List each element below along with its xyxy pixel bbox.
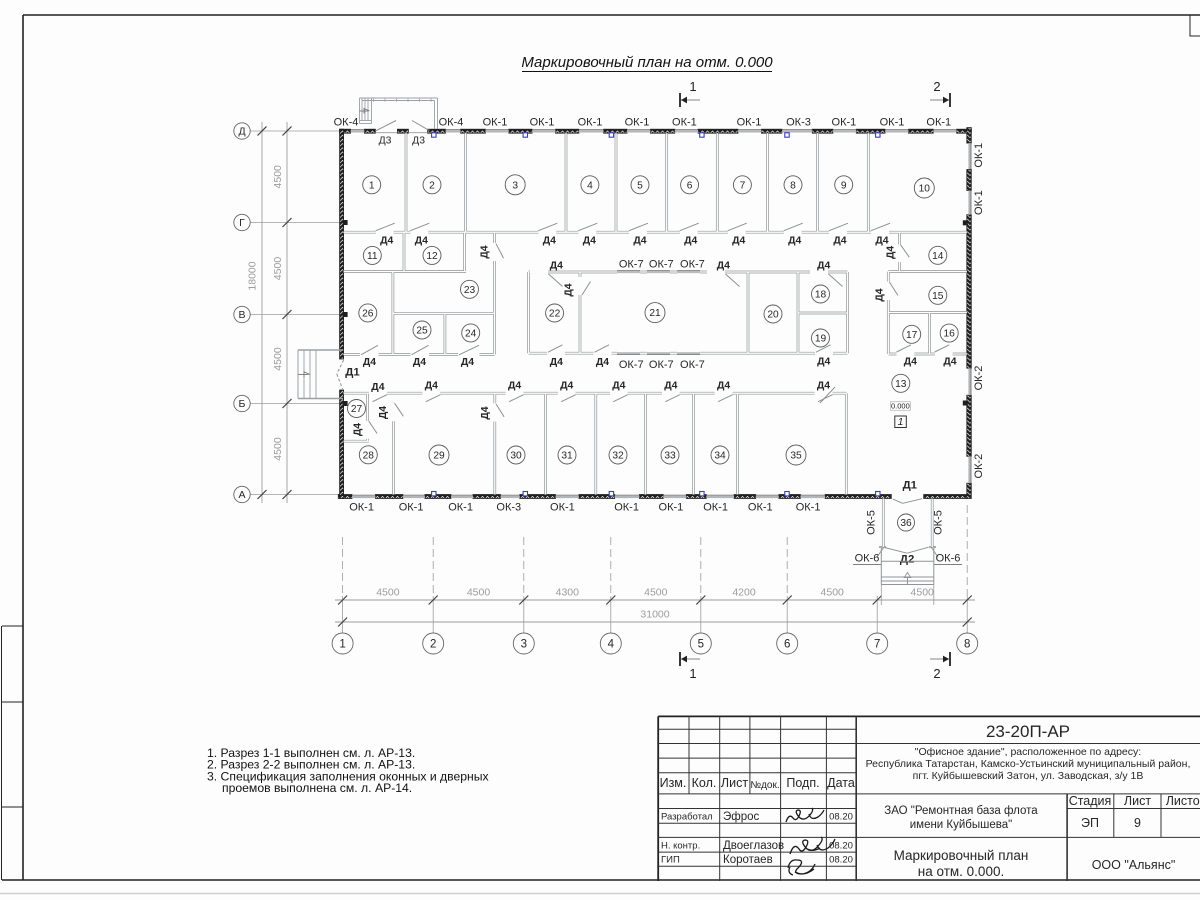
svg-text:Эфрос: Эфрос — [723, 811, 760, 823]
svg-text:21: 21 — [649, 308, 661, 319]
svg-text:4300: 4300 — [556, 587, 580, 599]
svg-text:22: 22 — [549, 309, 561, 320]
svg-text:Д4: Д4 — [596, 357, 609, 368]
svg-text:Д4: Д4 — [363, 357, 376, 368]
svg-text:18: 18 — [815, 290, 827, 301]
svg-text:Д1: Д1 — [903, 480, 918, 492]
svg-text:Д4: Д4 — [717, 381, 730, 392]
svg-text:№док.: №док. — [750, 780, 779, 791]
svg-text:2: 2 — [429, 180, 435, 191]
svg-text:Д4: Д4 — [583, 236, 596, 247]
svg-text:Д4: Д4 — [886, 246, 897, 259]
svg-text:ОК-1: ОК-1 — [973, 143, 985, 168]
svg-text:4200: 4200 — [732, 587, 756, 599]
svg-text:24: 24 — [465, 329, 477, 340]
svg-text:1: 1 — [339, 639, 345, 651]
svg-text:пгт. Куйбышевский Затон, ул. З: пгт. Куйбышевский Затон, ул. Заводская, … — [913, 770, 1144, 782]
svg-text:4: 4 — [587, 180, 593, 191]
svg-text:Республика Татарстан, Камско-У: Республика Татарстан, Камско-Устьинский … — [866, 758, 1191, 770]
svg-text:15: 15 — [932, 291, 944, 302]
svg-text:4: 4 — [608, 639, 615, 651]
svg-text:4500: 4500 — [272, 165, 284, 189]
svg-text:31000: 31000 — [640, 609, 669, 621]
svg-text:Стадия: Стадия — [1069, 794, 1112, 808]
svg-text:Д4: Д4 — [461, 357, 474, 368]
svg-text:36: 36 — [900, 518, 912, 529]
svg-text:Коротаев: Коротаев — [723, 854, 773, 866]
svg-text:Д4: Д4 — [413, 357, 426, 368]
svg-text:Лист: Лист — [721, 776, 748, 790]
svg-text:Изм.: Изм. — [660, 776, 687, 790]
svg-text:ОК-5: ОК-5 — [866, 510, 878, 535]
svg-text:13: 13 — [895, 379, 907, 390]
svg-text:8: 8 — [790, 180, 796, 191]
svg-text:12: 12 — [426, 251, 438, 262]
svg-text:32: 32 — [612, 451, 624, 462]
svg-text:28: 28 — [363, 450, 375, 461]
svg-text:1: 1 — [689, 666, 696, 681]
svg-text:Дата: Дата — [827, 776, 855, 790]
svg-text:2: 2 — [933, 666, 940, 681]
svg-text:4500: 4500 — [467, 587, 491, 599]
svg-text:ОК-1: ОК-1 — [625, 117, 650, 129]
svg-text:ОК-1: ОК-1 — [614, 501, 639, 513]
svg-text:2: 2 — [430, 639, 436, 651]
svg-text:Д3: Д3 — [379, 136, 392, 147]
svg-text:34: 34 — [714, 451, 726, 462]
svg-text:Д4: Д4 — [353, 423, 364, 436]
svg-text:4500: 4500 — [272, 437, 284, 461]
svg-text:ОК-1: ОК-1 — [832, 117, 857, 129]
svg-text:ОК-1: ОК-1 — [550, 501, 575, 513]
svg-text:Д4: Д4 — [664, 381, 677, 392]
svg-text:Разработал: Разработал — [661, 812, 713, 823]
svg-text:ЗАО "Ремонтная база флота: ЗАО "Ремонтная база флота — [884, 805, 1038, 817]
svg-text:ОК-3: ОК-3 — [496, 501, 521, 513]
svg-text:ОК-7: ОК-7 — [680, 259, 705, 271]
svg-text:Д4: Д4 — [633, 236, 646, 247]
svg-text:ОК-1: ОК-1 — [703, 501, 728, 513]
svg-text:ОК-6: ОК-6 — [855, 553, 880, 565]
svg-text:7: 7 — [874, 639, 880, 651]
svg-text:23: 23 — [464, 285, 476, 296]
svg-text:3: 3 — [521, 639, 527, 651]
svg-text:Д1: Д1 — [345, 367, 360, 379]
svg-text:Д4: Д4 — [943, 357, 956, 368]
svg-text:ОК-1: ОК-1 — [399, 501, 424, 513]
svg-text:16: 16 — [944, 329, 956, 340]
svg-text:Д4: Д4 — [378, 406, 389, 419]
svg-text:Д4: Д4 — [415, 236, 428, 247]
svg-text:Д4: Д4 — [875, 236, 888, 247]
svg-text:Маркировочный план на отм. 0.0: Маркировочный план на отм. 0.000 — [521, 54, 773, 71]
svg-text:6: 6 — [687, 180, 693, 191]
svg-text:08.20: 08.20 — [829, 812, 853, 823]
svg-text:Д4: Д4 — [717, 261, 730, 272]
svg-text:Д4: Д4 — [564, 283, 575, 296]
svg-text:1: 1 — [689, 79, 696, 94]
svg-text:10: 10 — [919, 184, 931, 195]
svg-text:ОК-1: ОК-1 — [926, 117, 951, 129]
svg-text:7: 7 — [740, 180, 746, 191]
svg-text:ОК-6: ОК-6 — [936, 553, 961, 565]
svg-text:Д4: Д4 — [425, 381, 438, 392]
svg-text:5: 5 — [698, 639, 704, 651]
svg-text:4500: 4500 — [272, 257, 284, 281]
svg-text:ОК-1: ОК-1 — [748, 501, 773, 513]
svg-text:Д4: Д4 — [874, 288, 885, 301]
svg-text:ОК-7: ОК-7 — [619, 359, 644, 371]
svg-text:ОК-7: ОК-7 — [619, 259, 644, 271]
svg-text:ЭП: ЭП — [1081, 816, 1099, 830]
svg-text:Д4: Д4 — [612, 381, 625, 392]
svg-text:3: 3 — [512, 180, 518, 191]
svg-text:Д4: Д4 — [817, 357, 830, 368]
svg-text:Д4: Д4 — [817, 261, 830, 272]
svg-text:ОК-1: ОК-1 — [880, 117, 905, 129]
svg-text:Д2: Д2 — [900, 554, 914, 566]
svg-text:ОК-7: ОК-7 — [649, 359, 674, 371]
svg-text:Подп.: Подп. — [786, 776, 819, 790]
svg-text:Д4: Д4 — [550, 357, 563, 368]
svg-text:ОК-1: ОК-1 — [973, 190, 985, 215]
svg-text:Д4: Д4 — [560, 381, 573, 392]
svg-text:25: 25 — [416, 326, 428, 337]
svg-text:Д4: Д4 — [380, 236, 393, 247]
svg-text:9: 9 — [841, 180, 847, 191]
svg-text:23-20П-АР: 23-20П-АР — [986, 722, 1070, 741]
svg-text:Б: Б — [239, 398, 246, 410]
svg-text:ОК-1: ОК-1 — [659, 501, 684, 513]
svg-text:ОК-1: ОК-1 — [483, 117, 508, 129]
svg-text:Д4: Д4 — [732, 236, 745, 247]
svg-text:ОК-3: ОК-3 — [786, 117, 811, 129]
svg-text:08.20: 08.20 — [829, 855, 853, 866]
svg-text:Д4: Д4 — [833, 236, 846, 247]
svg-text:проемов выполнена см. л. АР-14: проемов выполнена см. л. АР-14. — [222, 781, 412, 795]
svg-text:ОК-1: ОК-1 — [578, 117, 603, 129]
svg-text:5: 5 — [637, 180, 643, 191]
svg-text:ОК-5: ОК-5 — [933, 510, 945, 535]
svg-text:ОК-4: ОК-4 — [334, 117, 359, 129]
svg-text:35: 35 — [790, 451, 802, 462]
svg-text:18000: 18000 — [247, 261, 259, 290]
svg-text:11: 11 — [367, 251, 378, 262]
svg-text:30: 30 — [510, 451, 522, 462]
svg-text:ОК-1: ОК-1 — [349, 501, 374, 513]
svg-text:Д4: Д4 — [543, 236, 556, 247]
svg-text:Д4: Д4 — [817, 381, 830, 392]
svg-text:ООО "Альянс": ООО "Альянс" — [1092, 858, 1176, 872]
svg-text:ОК-2: ОК-2 — [973, 366, 985, 391]
svg-text:Д4: Д4 — [904, 357, 917, 368]
svg-text:4500: 4500 — [376, 587, 400, 599]
svg-text:14: 14 — [932, 251, 944, 262]
svg-text:на отм. 0.000.: на отм. 0.000. — [918, 864, 1004, 879]
svg-text:4500: 4500 — [644, 587, 668, 599]
svg-text:Д4: Д4 — [684, 236, 697, 247]
svg-text:Лист: Лист — [1124, 794, 1151, 808]
svg-text:0.000: 0.000 — [891, 401, 910, 410]
svg-text:19: 19 — [815, 334, 827, 345]
svg-text:ОК-1: ОК-1 — [672, 117, 697, 129]
svg-text:Д4: Д4 — [550, 261, 563, 272]
svg-text:Двоеглазов: Двоеглазов — [723, 840, 784, 852]
svg-text:Г: Г — [239, 217, 245, 229]
svg-text:ОК-1: ОК-1 — [530, 117, 555, 129]
svg-text:Д4: Д4 — [480, 406, 491, 419]
svg-text:"Офисное здание", расположенно: "Офисное здание", расположенное по адрес… — [915, 746, 1141, 758]
svg-text:20: 20 — [767, 310, 779, 321]
svg-text:8: 8 — [964, 639, 970, 651]
svg-text:Д4: Д4 — [788, 236, 801, 247]
svg-text:Д4: Д4 — [480, 245, 491, 258]
svg-text:26: 26 — [362, 309, 374, 320]
svg-text:2: 2 — [933, 79, 940, 94]
svg-text:Н. контр.: Н. контр. — [661, 841, 700, 852]
svg-text:Д: Д — [238, 126, 245, 138]
svg-text:1: 1 — [898, 416, 904, 428]
svg-text:Д4: Д4 — [371, 382, 384, 393]
svg-text:6: 6 — [784, 639, 790, 651]
svg-text:27: 27 — [351, 404, 363, 415]
svg-text:31: 31 — [561, 451, 573, 462]
svg-text:Листов: Листов — [1166, 794, 1200, 808]
svg-text:ОК-2: ОК-2 — [973, 454, 985, 479]
svg-text:ГИП: ГИП — [661, 855, 680, 866]
svg-text:33: 33 — [664, 451, 676, 462]
svg-text:имени Куйбышева": имени Куйбышева" — [910, 819, 1013, 831]
svg-text:В: В — [238, 309, 245, 321]
svg-text:4500: 4500 — [911, 587, 935, 599]
svg-text:Д4: Д4 — [508, 381, 521, 392]
svg-text:1: 1 — [369, 180, 375, 191]
svg-text:ОК-1: ОК-1 — [448, 501, 473, 513]
svg-text:ОК-4: ОК-4 — [439, 117, 464, 129]
svg-text:4500: 4500 — [821, 587, 845, 599]
svg-text:ОК-1: ОК-1 — [796, 501, 821, 513]
svg-text:Кол.: Кол. — [692, 776, 717, 790]
svg-text:Маркировочный план: Маркировочный план — [894, 848, 1029, 863]
svg-text:ОК-1: ОК-1 — [737, 117, 762, 129]
svg-text:17: 17 — [906, 330, 918, 341]
svg-text:4500: 4500 — [272, 347, 284, 371]
svg-text:29: 29 — [433, 451, 445, 462]
svg-text:9: 9 — [1134, 816, 1141, 830]
svg-text:А: А — [238, 489, 245, 501]
svg-text:ОК-7: ОК-7 — [649, 259, 674, 271]
svg-text:Д3: Д3 — [412, 136, 425, 147]
svg-text:ОК-7: ОК-7 — [680, 359, 705, 371]
